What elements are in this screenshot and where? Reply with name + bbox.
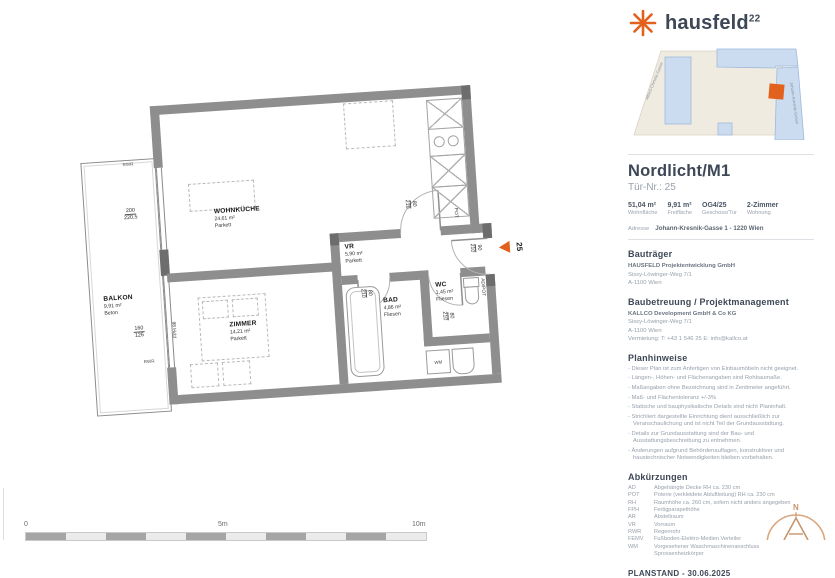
- management-name: KALLCO Development GmbH & Co KG: [628, 310, 814, 319]
- sink-bowl-icon: [433, 136, 445, 148]
- entrance-arrow-icon: [498, 241, 510, 254]
- pillow-outline: [202, 300, 229, 320]
- compass-icon: N: [752, 498, 835, 540]
- kitchen-tall-unit: [426, 98, 464, 130]
- rainpipe-label: RWR: [122, 162, 133, 168]
- stat-zimmer: 2-Zimmer Wohnung: [747, 202, 779, 216]
- management-street: Sissy-Löwinger-Weg 7/1: [628, 318, 814, 327]
- room-label-wohnkueche: WOHNKÜCHE 24,61 m² Parkett: [214, 205, 261, 230]
- developer-street: Sissy-Löwinger-Weg 7/1: [628, 271, 814, 280]
- sink-bowl-icon: [447, 135, 459, 147]
- room-label-balkon: BALKON 9,91 m² Beton: [103, 294, 134, 318]
- scale-start-label: 0: [24, 521, 28, 528]
- plan-note: Statische und bauphysikalische Details s…: [628, 404, 814, 412]
- sprossenheizkoerper-symbol: [628, 551, 654, 558]
- scale-segment: [146, 533, 186, 540]
- duct-label: POT: [453, 208, 459, 218]
- bathtub-inner: [349, 290, 380, 374]
- window-dimension: 200 220,5: [123, 207, 137, 221]
- scale-segment: [106, 533, 146, 540]
- management-city: A-1100 Wien: [628, 327, 814, 336]
- brand-logo: hausfeld22: [628, 8, 814, 38]
- abbreviations-heading: Abkürzungen: [628, 472, 814, 482]
- plan-note: Dieser Plan ist zum Anfertigen von Einba…: [628, 366, 814, 374]
- management-heading: Baubetreuung / Projektmanagement: [628, 297, 814, 307]
- plan-note: Änderungen aufgrund Behördenauflagen, ko…: [628, 448, 814, 463]
- page-edge-line: [3, 488, 4, 540]
- room-label-wc: WC 1,45 m² Fliesen: [435, 281, 454, 304]
- scale-segment: [266, 533, 306, 540]
- plan-note: Maß- und Flächentoleranz +/-3%: [628, 395, 814, 403]
- floor-plan: WM WOHNKÜCHE 24,61 m² Parkett ZIMMER 14,…: [65, 75, 556, 445]
- address-label: Adresse: [628, 226, 649, 232]
- washbasin: [451, 347, 475, 374]
- developer-heading: Bauträger: [628, 249, 814, 259]
- scale-mid-label: 5m: [218, 521, 228, 528]
- pillow-outline: [232, 298, 259, 318]
- stat-geschoss: OG4/25 Geschoss/Tür: [702, 202, 737, 216]
- washing-machine: WM: [426, 349, 452, 375]
- scale-segment: [306, 533, 346, 540]
- scale-segment: [386, 533, 426, 540]
- abbreviation-row: Sprossenheizkörper: [628, 551, 814, 558]
- brand-sup: 22: [749, 13, 761, 24]
- kitchen-sink: [428, 127, 466, 157]
- unit-stats: 51,04 m² Wohnfläche 9,91 m² Freifläche O…: [628, 202, 814, 216]
- door-dimension: 80 210: [403, 199, 417, 209]
- parapet-height-label: FPH 88: [173, 321, 179, 338]
- entrance-door-number: 25: [515, 242, 525, 251]
- stat-wohnflaeche: 51,04 m² Wohnfläche: [628, 202, 657, 216]
- compass-north-label: N: [793, 503, 799, 512]
- unit-location-marker: [768, 83, 784, 99]
- plan-note: Strichliert dargestellte Einrichtung die…: [628, 414, 814, 429]
- kitchen-tall-unit: [432, 184, 470, 218]
- plan-note: Längen-, Höhen- und Flächenangaben sind …: [628, 375, 814, 383]
- table-outline: [343, 100, 396, 149]
- door-number-label: Tür-Nr.: 25: [628, 182, 814, 193]
- wardrobe-outline: [222, 360, 252, 386]
- door-dimension: 80 210: [359, 288, 373, 298]
- floorplan-page: { "colors": { "accent": "#e2611c", "head…: [0, 0, 835, 540]
- plan-date: PLANSTAND - 30.06.2025: [628, 569, 814, 578]
- plan-note: Details zur Grundausstattung sind der Ba…: [628, 431, 814, 446]
- unit-title: Nordlicht/M1: [628, 162, 814, 181]
- door-dimension: 80 210: [441, 311, 455, 321]
- kitchen-tall-unit: [430, 154, 468, 188]
- bathtub: [345, 286, 385, 378]
- scale-segment: [66, 533, 106, 540]
- wardrobe-outline: [190, 362, 220, 388]
- scale-segment: [346, 533, 386, 540]
- door-arcs: [65, 75, 556, 445]
- brand-name: hausfeld22: [665, 12, 760, 35]
- rainpipe-label: RWR: [143, 359, 154, 365]
- abbreviation-row: AD Abgehängte Decke RH ca. 230 cm: [628, 485, 814, 492]
- entry-door-dimension: 90 210: [468, 243, 482, 253]
- washing-machine-label: WM: [434, 359, 442, 365]
- divider: [628, 239, 814, 240]
- plan-notes-heading: Planhinweise: [628, 353, 814, 363]
- address-row: Adresse Johann-Kresnik-Gasse 1 - 1220 Wi…: [628, 225, 814, 232]
- developer-city: A-1100 Wien: [628, 279, 814, 288]
- scale-segment: [186, 533, 226, 540]
- room-label-zimmer: ZIMMER 14,21 m² Parkett: [229, 320, 258, 344]
- scale-segment: [26, 533, 66, 540]
- abbreviation-row: WM Vorgesehener Waschmaschinenanschluss: [628, 544, 814, 551]
- site-plan-map: Alfred-Chmela-Gasse Johann-Kresnik-Gasse: [628, 48, 814, 140]
- scale-segment: [226, 533, 266, 540]
- hausfeld-star-icon: [628, 8, 658, 38]
- stat-freiflaeche: 9,91 m² Freifläche: [667, 202, 692, 216]
- room-label-bad: BAD 4,86 m² Fliesen: [383, 296, 402, 319]
- management-contact: Vermietung: T: +43 1 546 25 E: info@kall…: [628, 335, 814, 344]
- scale-end-label: 10m: [412, 521, 426, 528]
- room-label-vr: VR 5,90 m² Parkett: [344, 243, 363, 266]
- info-sidebar: hausfeld22 Alfred-Chmela-Gasse Johann-Kr…: [628, 6, 814, 578]
- plan-note: Maßangaben ohne Bezeichnung sind in Zent…: [628, 385, 814, 393]
- toilet-bowl: [464, 286, 479, 305]
- window-dimension: 160 126: [133, 325, 145, 339]
- address-value: Johann-Kresnik-Gasse 1 - 1220 Wien: [655, 225, 763, 232]
- divider: [628, 154, 814, 155]
- developer-name: HAUSFELD Projektentwicklung GmbH: [628, 262, 814, 271]
